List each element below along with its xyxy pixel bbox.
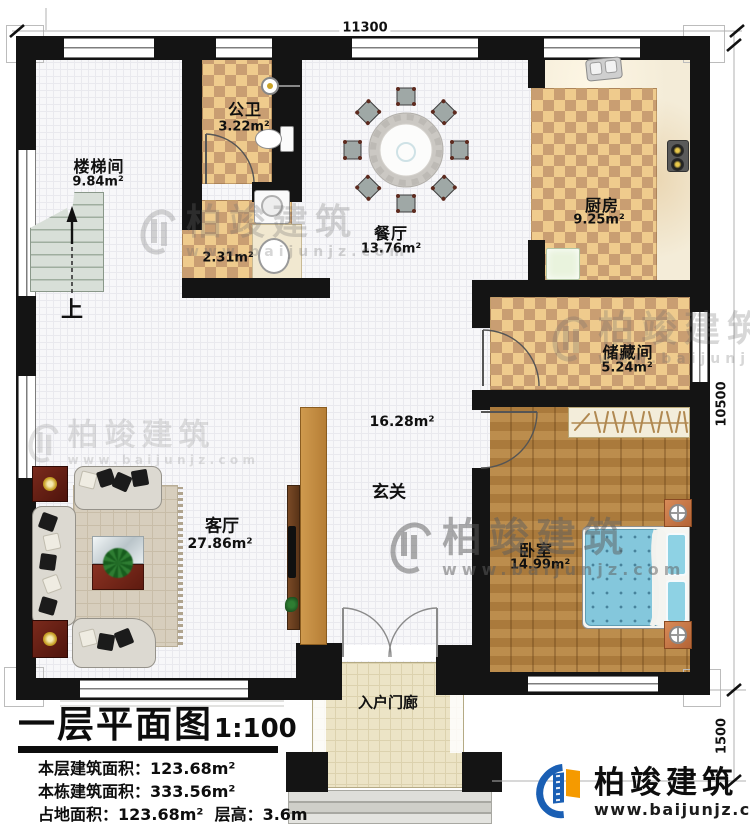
side-table-ornament [43,477,57,491]
wall-kitchen-storage [472,280,710,297]
stove-burner-2 [671,158,684,171]
label-storage: 储藏间 [602,345,653,361]
brand-logo-url: www.baijunjz.com [594,802,750,818]
kitchen-sink-basin-2 [604,59,617,73]
wall-storage-left [472,280,490,328]
washing-machine-drum [261,195,283,217]
living-rug-fringe [178,487,183,645]
sofa-cushion [43,533,62,552]
wardrobe [568,407,690,438]
wall-bedroom-left-upper [472,390,490,410]
sofa-pillow [131,469,150,488]
window-living-left [18,376,36,478]
tv-plant [285,597,298,612]
label-foyer-area: 16.28m² [369,415,434,429]
wall-entry-right [436,645,476,695]
bed-pillow-2 [666,580,687,623]
label-foyer: 玄关 [372,485,406,502]
label-living-area: 27.86m² [187,537,252,551]
window-bath-top [216,38,272,58]
label-porch: 入户门廊 [358,696,418,711]
tv-screen [288,526,296,578]
dim-right-upper: 10500 [715,381,730,426]
vanity-basin [258,238,290,274]
front-door-opening [342,645,436,661]
wall-kitchen-stub-top [528,36,545,88]
storage-tile-floor [490,297,690,390]
bed-sheet-fold [652,529,666,626]
label-bedroom-area: 14.99m² [510,559,570,572]
sofa-pillow [39,553,57,571]
wall-porch-left-block [296,643,342,700]
bed-pillow-1 [666,533,687,576]
porch-pillar-right [462,752,502,792]
brand-logo-text: 柏竣建筑 [594,768,738,799]
label-dining: 餐厅 [374,226,408,242]
wall-bedroom-left-lower [472,468,490,695]
label-stair-up: 上 [61,300,83,322]
label-bath-area: 3.22m² [218,121,269,134]
dim-top: 11300 [339,21,390,36]
nightstand-lamp-top [669,504,687,522]
coffee-table-plant [103,548,133,578]
label-stairwell-area: 9.84m² [72,176,123,189]
wall-stairwell-right [182,36,202,230]
window-storage-right [692,312,708,382]
entry-step-2 [288,802,492,813]
brand-logo-icon [536,762,590,820]
bed-duvet [585,529,660,626]
entry-step-3 [288,813,492,824]
page-title-scale: 1:100 [214,716,297,742]
page-title: 一层平面图 [18,706,213,743]
label-bath: 公卫 [228,102,262,118]
label-stairwell: 楼梯间 [73,159,124,175]
kitchen-sink-basin-1 [589,61,602,75]
label-kitchen-area: 9.25m² [573,214,624,227]
partition-wood-panel [300,407,327,645]
window-kitchen-top [544,38,640,58]
info-line-footprint-height: 占地面积：123.68m² 层高：3.6m [38,807,308,823]
dim-right-lower: 1500 [715,718,730,754]
side-table-ornament [43,632,57,646]
info-line-floor-area: 本层建筑面积：123.68m² [38,761,235,777]
window-stairwell-top [64,38,154,58]
title-underline [18,746,278,753]
wall-storage-bottom [472,390,710,407]
window-bedroom-bottom [528,676,658,692]
sofa-pillow [97,633,116,652]
label-living: 客厅 [205,519,239,536]
label-dining-area: 13.76m² [361,243,421,256]
stove-burner-1 [671,144,684,157]
info-line-building-area: 本栋建筑面积：333.56m² [38,784,235,800]
label-storage-area: 5.24m² [601,362,652,375]
porch-pillar-left [286,752,328,792]
floor-plan-canvas: 楼梯间 9.84m² 公卫 3.22m² 2.31m² 餐厅 13.76m² 厨… [0,0,750,834]
window-living-bottom [80,680,248,698]
fridge [546,248,580,280]
toilet [280,126,294,152]
wall-utility-bottom [182,278,330,298]
window-dining-top [352,38,478,58]
nightstand-lamp-bottom [669,626,687,644]
label-utility-area: 2.31m² [202,252,253,265]
wall-bath-right [272,36,302,202]
